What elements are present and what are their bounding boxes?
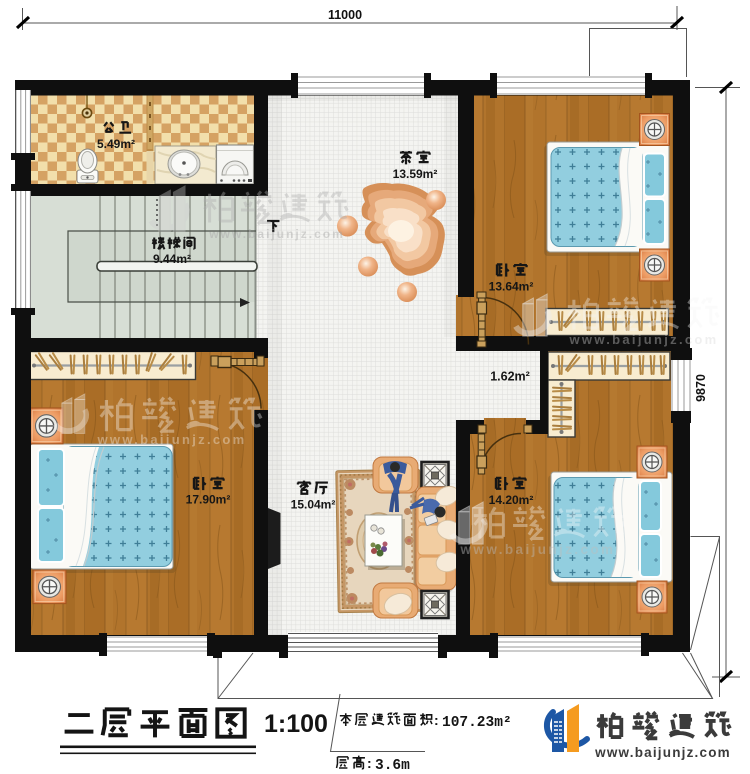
- svg-text:13.59m²: 13.59m²: [393, 167, 438, 181]
- svg-text:www.baijunjz.com: www.baijunjz.com: [97, 432, 247, 447]
- svg-text:9.44m²: 9.44m²: [153, 252, 191, 266]
- svg-text:107.23m²: 107.23m²: [442, 715, 512, 731]
- svg-text:13.64m²: 13.64m²: [489, 280, 534, 294]
- svg-text:5.49m²: 5.49m²: [97, 137, 135, 151]
- svg-text:14.20m²: 14.20m²: [489, 493, 534, 507]
- svg-text:www.baijunjz.com: www.baijunjz.com: [569, 332, 719, 347]
- svg-text:1.62m²: 1.62m²: [490, 370, 530, 384]
- svg-text:3.6m: 3.6m: [375, 758, 410, 774]
- svg-text:17.90m²: 17.90m²: [186, 493, 231, 507]
- svg-text::: :: [367, 755, 372, 771]
- svg-text:9870: 9870: [694, 374, 708, 402]
- svg-text:11000: 11000: [328, 8, 362, 22]
- svg-text:www.baijunjz.com: www.baijunjz.com: [208, 227, 345, 241]
- svg-text::: :: [434, 712, 439, 728]
- svg-text:15.04m²: 15.04m²: [291, 498, 336, 512]
- svg-text:www.baijunjz.com: www.baijunjz.com: [594, 745, 731, 760]
- svg-text:www.baijunjz.com: www.baijunjz.com: [460, 542, 616, 557]
- svg-text:1:100: 1:100: [264, 710, 328, 738]
